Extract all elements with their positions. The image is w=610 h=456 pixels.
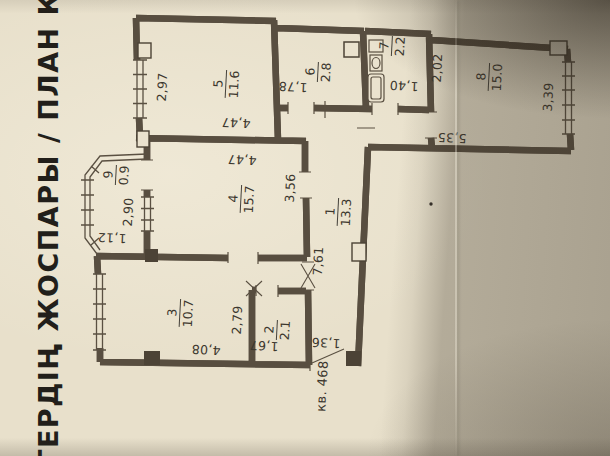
room-label-4: 415.7	[226, 184, 257, 213]
apartment-number-label: кв. 468	[313, 360, 331, 412]
room-area: 15.7	[241, 185, 257, 214]
room-number: 8	[474, 62, 491, 91]
room-area: 10.7	[180, 299, 196, 328]
dimension-label: 4,47	[227, 152, 257, 168]
room-number: 9	[101, 164, 117, 185]
dimension-label: 2,02	[429, 53, 445, 83]
dimension-label: 3,56	[282, 173, 298, 203]
room-number: 6	[303, 61, 319, 82]
room-area: 13.3	[338, 198, 354, 227]
dimension-label: 2,79	[229, 305, 245, 335]
room-number: 5	[211, 69, 228, 98]
dimension-label: 3,39	[540, 82, 556, 112]
room-number: 1	[323, 197, 340, 226]
room-number: 2	[262, 319, 278, 340]
room-number: 7	[377, 35, 393, 56]
dimension-label: 1,78	[278, 79, 308, 95]
dimension-label: 4,47	[221, 115, 251, 131]
dimension-label: 1,40	[389, 78, 419, 94]
room-label-8: 815.0	[474, 62, 505, 91]
room-area: 11.6	[226, 70, 242, 99]
room-number: 3	[165, 298, 182, 327]
room-number: 4	[226, 184, 243, 213]
dimension-label: 7,61	[310, 246, 326, 276]
document-title: ТЕРДІҢ ЖОСПАРЫ / ПЛАН КВАРТИ	[0, 0, 40, 456]
dimension-label: 2,90	[120, 197, 136, 227]
room-label-9: 90.9	[101, 164, 131, 185]
room-label-2: 22.1	[262, 319, 292, 340]
room-area: 15.0	[489, 63, 505, 92]
dimension-label: 4,08	[191, 342, 221, 358]
room-area: 2.1	[277, 320, 292, 341]
dimension-label: 2,97	[154, 72, 170, 102]
document-title-text: ТЕРДІҢ ЖОСПАРЫ / ПЛАН КВАРТИ	[33, 0, 64, 456]
room-label-7: 72.2	[377, 35, 407, 56]
room-area: 0.9	[116, 165, 131, 186]
floor-plan-photo: 113.322.1310.7415.7511.662.872.2815.090.…	[0, 0, 610, 456]
dimension-label: 1,67	[249, 338, 279, 354]
room-area: 2.8	[318, 62, 333, 83]
labels-layer: 113.322.1310.7415.7511.662.872.2815.090.…	[0, 0, 610, 456]
room-label-1: 113.3	[323, 197, 354, 226]
dimension-label: 1,12	[97, 230, 127, 246]
room-label-3: 310.7	[165, 298, 196, 327]
dimension-label: 1,36	[311, 335, 341, 351]
dimension-label: 5,35	[437, 130, 467, 146]
room-area: 2.2	[392, 36, 407, 57]
room-label-5: 511.6	[211, 69, 242, 98]
